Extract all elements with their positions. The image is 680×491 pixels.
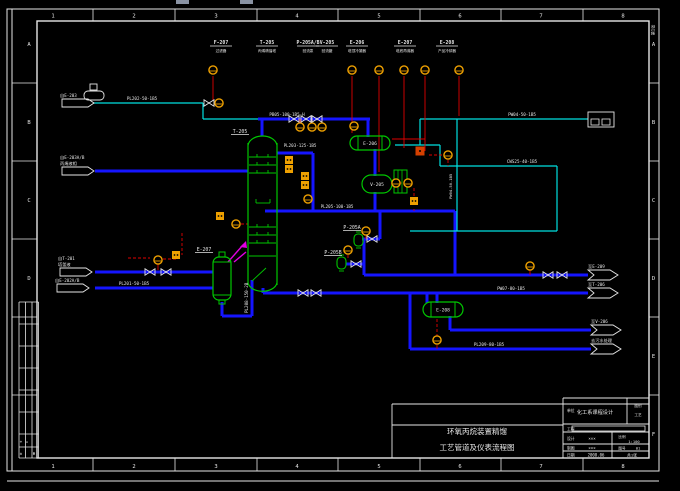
corner-label: 第1张 <box>650 25 656 35</box>
tb-label: 制图 <box>567 446 575 451</box>
flag-label: 至V-206 <box>591 319 608 324</box>
outlet-flag <box>588 288 618 298</box>
pipe-line-number: PL202-50-1B5 <box>127 96 158 101</box>
window-artifacts <box>176 0 253 4</box>
row-letter: C <box>652 198 655 204</box>
labels: F-207过滤器T-205丙烯精馏塔P-205A/B回流泵V-205回流罐E-2… <box>119 40 538 347</box>
window-artifact <box>176 0 189 4</box>
drawing-title-line2: 工艺管道及仪表流程图 <box>440 442 515 452</box>
pipe-line-number: PL205-100-1B5 <box>321 204 354 209</box>
column-number: 1 <box>51 464 54 470</box>
tb-cell: 01 <box>636 446 641 451</box>
column-number: 4 <box>295 14 299 20</box>
tb-cell: 图别 <box>634 403 642 408</box>
tb-cell: 1:100 <box>628 439 640 444</box>
equipment-index-tag: V-205 <box>320 40 335 46</box>
equipment-index-desc: 过滤器 <box>216 48 227 53</box>
column-number: 5 <box>377 464 380 470</box>
sump-line <box>252 268 266 281</box>
row-letter: C <box>27 198 30 204</box>
column-number: 6 <box>458 464 461 470</box>
pipe-line-number: PB05-100-1B5-H <box>269 112 305 117</box>
inline-device-top <box>90 84 97 90</box>
pipe-line-number: PW04-50-1B5 <box>508 112 536 117</box>
tb-cell: 工艺 <box>634 412 642 417</box>
instrument-bubble-icon <box>433 336 441 344</box>
instrument-bubble-icon <box>308 123 316 131</box>
rev-mark: = <box>26 439 29 444</box>
equipment-index-tag: E-207 <box>398 40 413 46</box>
rev-mark: Φ <box>33 451 36 456</box>
instrument-bubble-icon <box>344 246 352 254</box>
instrument-bubble-icon <box>392 179 400 187</box>
process-pipe <box>95 119 591 349</box>
equipment-tag: P-205B <box>324 250 341 256</box>
row-letter: F <box>652 432 655 438</box>
equipment-index-tag: F-207 <box>214 40 229 46</box>
equipment-index-tag: E-206 <box>350 40 365 46</box>
row-letter: E <box>652 354 655 360</box>
control-valve-icon <box>301 181 309 189</box>
pipe-line-number: PL209-80-1B5 <box>474 342 505 347</box>
row-letter: B <box>27 120 31 126</box>
pump-capsule <box>337 257 346 269</box>
tb-label: 工程 <box>567 427 575 432</box>
stream-flags: 自E-203自E-203A/B丙烯液相自T-201塔釜液自E-202A/B至E-… <box>55 84 621 354</box>
column-number: 6 <box>458 14 461 20</box>
pipe-line-number: PL201-50-1B5 <box>119 281 150 286</box>
control-valve-icon <box>410 197 418 205</box>
equipment-index-desc: 塔顶冷凝器 <box>348 48 366 53</box>
control-valve-icon <box>172 251 180 259</box>
equipment-tag: P-205A <box>343 225 360 231</box>
tb-cell: 图号 <box>618 446 626 451</box>
row-letter: B <box>652 120 656 126</box>
cad-canvas: 1122334455667788AABBCCDDEF第1张E-206V-205E… <box>0 0 680 491</box>
flag-label: 塔釜液 <box>58 261 71 268</box>
outlet-flag <box>591 344 621 354</box>
column-number: 7 <box>539 14 542 20</box>
tb-label: 单位 <box>567 408 575 413</box>
instrument-bubble-icon <box>400 66 408 74</box>
pid-drawing: 1122334455667788AABBCCDDEF第1张E-206V-205E… <box>0 0 680 491</box>
flag-label: 去污水处理 <box>591 337 613 344</box>
equipment-index-tag: P-205A/B <box>296 40 319 46</box>
titleblock-field <box>572 426 645 431</box>
vessel-shell <box>213 257 231 300</box>
instrument-bubble-icon <box>375 66 383 74</box>
instrument-bubble-icon <box>444 151 452 159</box>
row-letter: D <box>652 276 655 282</box>
equipment-tag: E-206 <box>363 141 377 147</box>
instrument-bubble-icon <box>404 179 412 187</box>
instrument-bubble-icon <box>362 227 370 235</box>
column-number: 3 <box>214 464 217 470</box>
instrument-bubble-icon <box>296 123 304 131</box>
tb-label: 日期 <box>567 453 575 458</box>
instrument-bubble-icon <box>318 123 326 131</box>
tb-value: ××× <box>588 446 596 451</box>
equipment-tag: E-208 <box>436 308 450 314</box>
column-number: 7 <box>539 464 542 470</box>
tb-value: 2008.06 <box>588 453 605 458</box>
column-top-dome <box>248 136 277 145</box>
pipe-line-number: PW04-50-1B5 <box>448 174 453 199</box>
column-number: 1 <box>51 14 54 20</box>
column-number: 8 <box>621 464 624 470</box>
flag-label: 自E-203 <box>60 92 77 99</box>
control-valve-icon <box>285 165 293 173</box>
instrument-bubble-icon <box>348 66 356 74</box>
window-artifact <box>240 0 253 4</box>
pipe-line-number: PW07-80-1B5 <box>497 286 525 291</box>
flag-label: 至E-209 <box>588 264 605 269</box>
tb-cell: 比例 <box>618 434 626 439</box>
equipment-tag: V-205 <box>370 182 384 188</box>
equipment-index-desc: 塔底再沸器 <box>396 48 414 53</box>
instrument-bubble-icon <box>421 66 429 74</box>
flag-label: 自E-202A/B <box>55 277 80 284</box>
equipment-index-tag: T-205 <box>260 40 275 46</box>
feed-arrow <box>240 241 247 248</box>
instrument-bubble-icon <box>215 99 223 107</box>
instrument-bubble-icon <box>232 220 240 228</box>
tb-label: 设计 <box>567 436 575 441</box>
control-valve-icon <box>216 212 224 220</box>
tb-org: 化工系课程设计 <box>577 408 613 416</box>
rev-mark: ± <box>20 451 23 456</box>
drawing-title-line1: 环氧丙烷装置精馏 <box>447 426 507 436</box>
instrument-bubble-icon <box>154 256 162 264</box>
column-number: 4 <box>295 464 299 470</box>
instrument-bubble-icon <box>350 122 358 130</box>
instrument-bubble-icon <box>455 66 463 74</box>
column-number: 3 <box>214 14 217 20</box>
outlet-flag <box>591 325 621 335</box>
tb-value: ××× <box>588 436 596 441</box>
instrument-bubble-icon <box>526 262 534 270</box>
pipe-line-number: PL203-125-1B5 <box>284 143 317 148</box>
hand-valve-icon <box>204 100 214 106</box>
rev-mark: + <box>20 439 23 444</box>
title-block: 环氧丙烷装置精馏工艺管道及仪表流程图单位化工系课程设计图别工艺工程设计×××比例… <box>392 398 649 458</box>
equipment-index-desc: 产品冷却器 <box>438 48 456 53</box>
row-letter: A <box>27 42 31 48</box>
column-number: 2 <box>132 464 135 470</box>
row-letter: A <box>652 42 656 48</box>
inlet-flag <box>62 167 94 175</box>
equipment-index-desc: 丙烯精馏塔 <box>258 48 276 53</box>
equipment-tag: T-205 <box>233 129 248 135</box>
inlet-flag <box>57 284 89 292</box>
instrument-bubble-icon <box>304 195 312 203</box>
inlet-flag <box>60 268 92 276</box>
tb-cell: 共1张 <box>627 453 637 458</box>
flag-label: 自T-201 <box>58 255 75 262</box>
control-valve-icon <box>301 172 309 180</box>
drawing-frame: 1122334455667788AABBCCDDEF第1张 <box>7 9 659 481</box>
flag-label: 至T-206 <box>588 282 605 287</box>
column-number: 2 <box>132 14 135 20</box>
equipment-tag: E-207 <box>197 247 212 253</box>
equipment-index-desc: 回流罐 <box>322 48 333 53</box>
feed-line <box>228 245 246 262</box>
inner-border <box>37 21 649 458</box>
equipment-index-tag: E-208 <box>440 40 455 46</box>
instruments <box>145 66 567 344</box>
pipe-line-number: PL208-150-2B <box>244 282 249 313</box>
flag-label: 自E-203A/B <box>60 154 85 161</box>
row-letter: D <box>27 276 30 282</box>
column-number: 5 <box>377 14 380 20</box>
vessel-nozzle <box>219 252 225 257</box>
pipe-line-number: CWS25-40-1B5 <box>507 159 538 164</box>
flag-label: 丙烯液相 <box>60 160 77 167</box>
revision-table: +=±Φ <box>19 302 39 458</box>
control-valve-icon <box>285 156 293 164</box>
outlet-flag <box>588 270 618 280</box>
equipment-index-desc: 回流泵 <box>303 48 314 53</box>
outer-border <box>7 9 659 471</box>
pump-capsule <box>354 234 363 246</box>
column-number: 8 <box>621 14 624 20</box>
instrument-bubble-icon <box>209 66 217 74</box>
